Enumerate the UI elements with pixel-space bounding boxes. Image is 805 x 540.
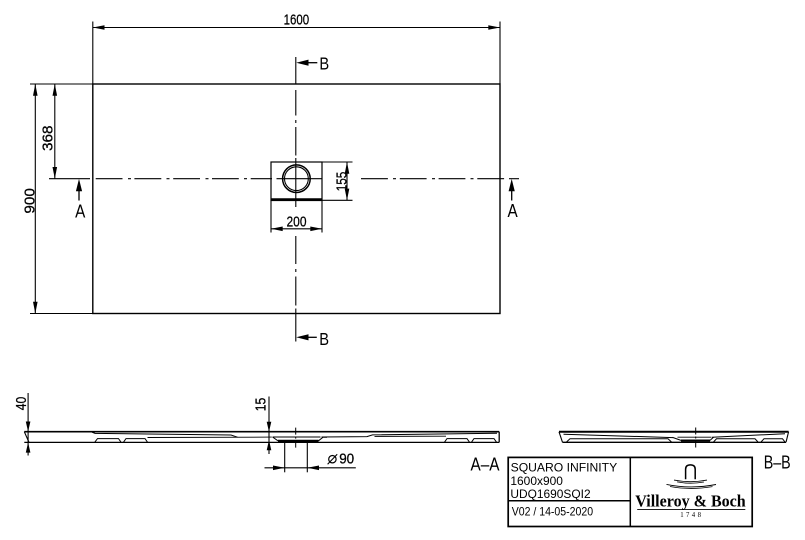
svg-text:A–A: A–A: [471, 453, 501, 474]
svg-text:A: A: [508, 201, 518, 221]
svg-text:40: 40: [14, 397, 30, 411]
svg-text:B: B: [319, 329, 329, 349]
svg-text:200: 200: [287, 214, 307, 230]
svg-text:1600x900: 1600x900: [510, 475, 563, 488]
svg-text:90: 90: [339, 451, 354, 467]
svg-text:15: 15: [254, 398, 270, 412]
svg-text:155: 155: [335, 172, 351, 192]
svg-text:900: 900: [23, 188, 39, 214]
svg-text:A: A: [75, 202, 85, 222]
svg-text:Villeroy & Boch: Villeroy & Boch: [635, 492, 746, 511]
svg-text:368: 368: [40, 126, 56, 152]
svg-text:B–B: B–B: [764, 452, 791, 473]
svg-text:UDQ1690SQI2: UDQ1690SQI2: [510, 488, 590, 501]
svg-text:SQUARO INFINITY: SQUARO INFINITY: [511, 462, 618, 475]
svg-text:V02 / 14-05-2020: V02 / 14-05-2020: [512, 506, 594, 519]
svg-text:1600: 1600: [284, 12, 310, 28]
svg-text:1748: 1748: [680, 512, 703, 519]
svg-text:B: B: [319, 54, 329, 74]
